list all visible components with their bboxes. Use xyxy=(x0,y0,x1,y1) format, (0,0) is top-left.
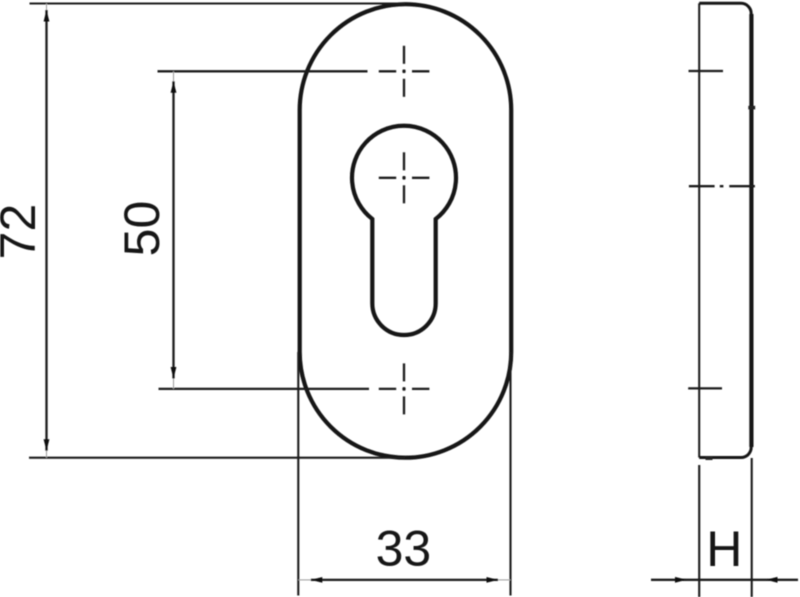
svg-text:33: 33 xyxy=(376,521,432,577)
svg-text:H: H xyxy=(706,521,742,577)
svg-text:72: 72 xyxy=(0,204,46,260)
svg-text:50: 50 xyxy=(114,201,170,257)
